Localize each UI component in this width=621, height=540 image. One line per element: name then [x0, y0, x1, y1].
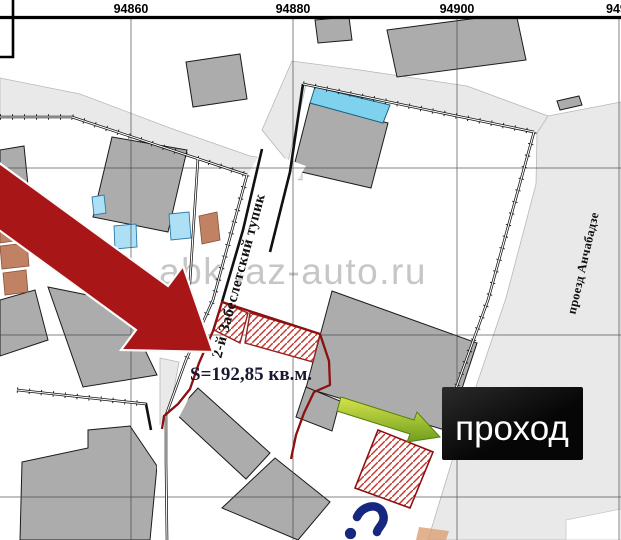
building [0, 290, 48, 356]
building [387, 13, 526, 77]
map-canvas: abkhaz-auto.ru [0, 0, 621, 540]
ruler-tick-label: 94900 [440, 2, 475, 16]
building [186, 54, 247, 107]
passage-callout: проход [442, 387, 583, 460]
building [315, 17, 352, 43]
coordinate-ruler: 94860 94880 94900 949 [0, 0, 621, 57]
building-tan [3, 270, 28, 295]
hatched-parcel [245, 313, 320, 362]
building-blue-annex [114, 224, 137, 249]
building [175, 388, 270, 479]
ruler-tick-label: 949 [606, 2, 621, 16]
area-label: S=192,85 кв.м. [190, 364, 312, 385]
ruler-tick-label: 94880 [276, 2, 311, 16]
ruler-strip [0, 0, 621, 16]
ruler-tick-label: 94860 [114, 2, 149, 16]
building-blue-annex [92, 195, 106, 215]
building-blue-annex [169, 212, 191, 240]
fence-inner [17, 390, 146, 404]
cadastral-map-screenshot: abkhaz-auto.ru [0, 0, 621, 540]
hatched-parcel [355, 430, 433, 508]
building-tan [199, 212, 220, 244]
building [20, 426, 157, 540]
passage-label-text: проход [455, 409, 569, 448]
map-symbol-navy [345, 506, 384, 539]
building [557, 96, 582, 110]
